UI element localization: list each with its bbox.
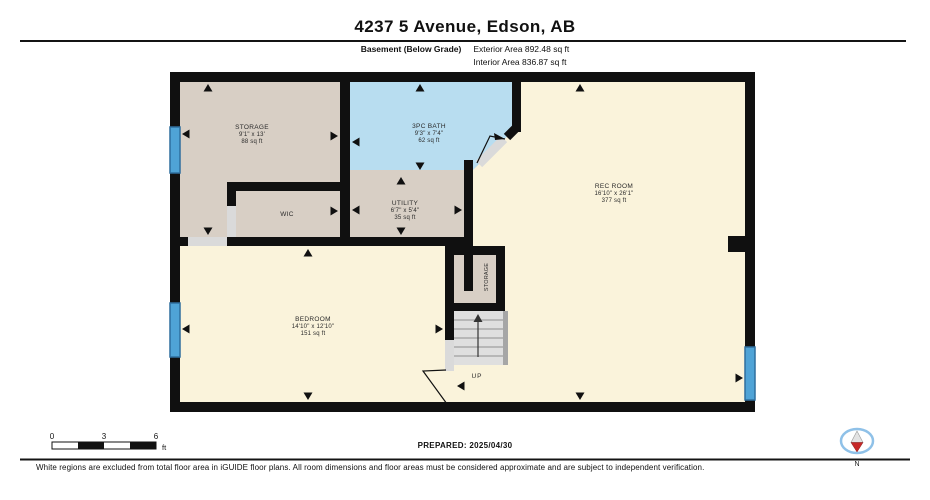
- bath-room-name: 3PC BATH: [412, 123, 446, 130]
- floor-plan-page: 4237 5 Avenue, Edson, AB Basement (Below…: [0, 0, 930, 500]
- wall-segment: [512, 82, 521, 132]
- wall-segment: [496, 246, 505, 311]
- wall-segment: [507, 128, 516, 137]
- floor-plan-svg: STORAGE 9'1" x 13' 88 sq ft 3PC BATH 9'3…: [0, 0, 930, 500]
- wall-segment: [728, 236, 745, 252]
- rec-room-name: REC ROOM: [595, 183, 633, 190]
- wall-segment: [227, 182, 349, 191]
- utility-room-name: UTILITY: [392, 200, 419, 207]
- scale-end-label: 6: [154, 432, 159, 441]
- closet-room-name: STORAGE: [484, 263, 490, 291]
- wall-segment: [170, 72, 755, 82]
- stairs-up-label: UP: [471, 373, 482, 380]
- wall-segment: [464, 254, 473, 291]
- bedroom-area: 151 sq ft: [301, 331, 326, 337]
- bath-room-area: 62 sq ft: [418, 138, 439, 144]
- wic-room-name: WIC: [280, 211, 294, 218]
- wall-segment: [464, 160, 473, 246]
- scale-mid-label: 3: [102, 432, 107, 441]
- bedroom-name: BEDROOM: [295, 316, 331, 323]
- wall-segment: [445, 246, 454, 340]
- scale-start-label: 0: [50, 432, 55, 441]
- bath-room-dims: 9'3" x 7'4": [415, 131, 443, 137]
- wall-segment: [445, 303, 505, 311]
- door-opening: [188, 237, 227, 246]
- utility-room-area: 35 sq ft: [394, 215, 415, 221]
- utility-room-dims: 6'7" x 5'4": [391, 208, 419, 214]
- wall-segment: [227, 182, 236, 208]
- north-label: N: [854, 461, 859, 468]
- window: [170, 303, 180, 357]
- stairs-edge: [503, 311, 508, 365]
- rec-room-dims: 16'10" x 26'1": [594, 191, 633, 197]
- rec-room-area: 377 sq ft: [602, 198, 627, 204]
- storage-room-name: STORAGE: [235, 124, 269, 131]
- storage-room-dims: 9'1" x 13': [239, 132, 265, 138]
- window: [170, 127, 180, 173]
- prepared-date: PREPARED: 2025/04/30: [0, 441, 930, 450]
- disclaimer-text: White regions are excluded from total fl…: [36, 463, 704, 472]
- wall-segment: [340, 82, 350, 242]
- window: [745, 347, 755, 400]
- wall-segment: [170, 402, 755, 412]
- bedroom-dims: 14'10" x 12'10": [292, 324, 335, 330]
- door-opening: [227, 206, 236, 237]
- door-opening: [445, 340, 454, 371]
- storage-room-area: 88 sq ft: [241, 139, 262, 145]
- room-storage-floor: [180, 82, 345, 240]
